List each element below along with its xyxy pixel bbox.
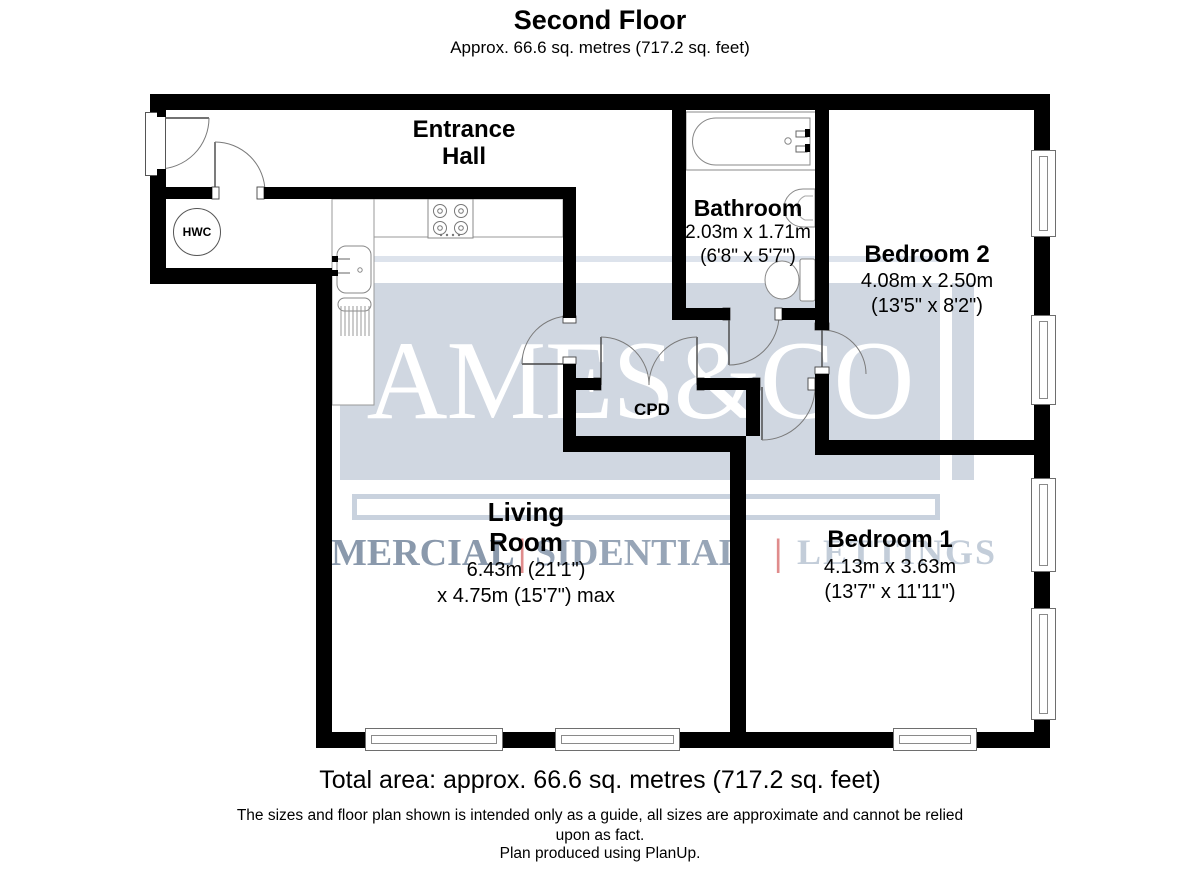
label-bedroom2: Bedroom 2 4.08m x 2.50m (13'5" x 8'2") [818, 241, 1036, 319]
bathroom-dims-metric: 2.03m x 1.71m [656, 221, 840, 245]
window-pane [371, 735, 497, 744]
cpd-door-right [649, 337, 697, 385]
window-bedroom2-upper [1031, 150, 1056, 237]
entrance-hall-name-line2: Hall [354, 143, 574, 170]
label-cpd: CPD [612, 400, 692, 420]
window-bedroom1-bottom [893, 728, 977, 751]
bedroom1-name: Bedroom 1 [768, 526, 1012, 554]
window-bedroom1-upper [1031, 478, 1056, 572]
bathroom-dims-imperial: (6'8" x 5'7") [656, 245, 840, 269]
living-room-name-line2: Room [378, 527, 674, 557]
bathtub-icon [686, 112, 816, 170]
wall-cpd-right [746, 390, 760, 436]
cpd-door-left [601, 337, 649, 385]
wall-hall-bottom-b [264, 187, 576, 199]
window-bedroom2-lower [1031, 315, 1056, 405]
wall-cpd-bottom [563, 436, 746, 452]
entrance-hall-name-line1: Entrance [354, 116, 574, 143]
entrance-jamb-bottom [157, 169, 166, 176]
label-entrance-hall: Entrance Hall [354, 116, 574, 170]
bathroom-name: Bathroom [656, 196, 840, 221]
bathroom-door [729, 315, 779, 365]
living-room-dims-metric: 6.43m (21'1") [378, 557, 674, 583]
wall-bedroom2-bottom [815, 440, 1034, 455]
window-pane [561, 735, 674, 744]
window-pane [1039, 321, 1048, 399]
wall-top [150, 94, 1050, 110]
living-room-name-line1: Living [378, 497, 674, 527]
entrance-door-frame [145, 112, 166, 176]
hot-water-cylinder: HWC [173, 208, 221, 256]
bedroom1-dims-imperial: (13'7" x 11'11") [768, 580, 1012, 605]
bedroom2-name: Bedroom 2 [818, 241, 1036, 268]
label-bedroom1: Bedroom 1 4.13m x 3.63m (13'7" x 11'11") [768, 526, 1012, 605]
wall-bathroom-bottom-a [672, 308, 730, 320]
window-pane [899, 735, 971, 744]
bedroom1-dims-metric: 4.13m x 3.63m [768, 554, 1012, 580]
window-pane [1039, 156, 1048, 231]
window-pane [1039, 614, 1048, 714]
label-bathroom: Bathroom 2.03m x 1.71m (6'8" x 5'7") [656, 196, 840, 269]
label-living-room: Living Room 6.43m (21'1") x 4.75m (15'7"… [378, 497, 674, 609]
entrance-jamb-top [157, 110, 166, 117]
wall-closet-bottom [150, 268, 332, 284]
window-pane [1039, 484, 1048, 566]
wall-cpd-top-left [563, 378, 601, 390]
wall-hall-bottom-a [166, 187, 212, 199]
hwc-door [215, 142, 265, 192]
floorplan-page: Second Floor Approx. 66.6 sq. metres (71… [0, 0, 1200, 873]
wall-kitchen-corridor-upper [563, 187, 576, 318]
wall-cpd-top-right [697, 378, 760, 390]
window-livingroom-right [555, 728, 680, 751]
stove-icon [428, 199, 473, 238]
window-bedroom1-lower [1031, 608, 1056, 720]
bedroom2-dims-imperial: (13'5" x 8'2") [818, 294, 1036, 319]
bedroom1-door [762, 387, 815, 440]
window-livingroom-left [365, 728, 503, 751]
wall-living-bedroom1-divider [730, 436, 746, 748]
hwc-label: HWC [183, 225, 212, 239]
bedroom2-dims-metric: 4.08m x 2.50m [818, 268, 1036, 294]
living-room-dims-imperial: x 4.75m (15'7") max [378, 583, 674, 609]
wall-livingroom-left [316, 268, 332, 748]
